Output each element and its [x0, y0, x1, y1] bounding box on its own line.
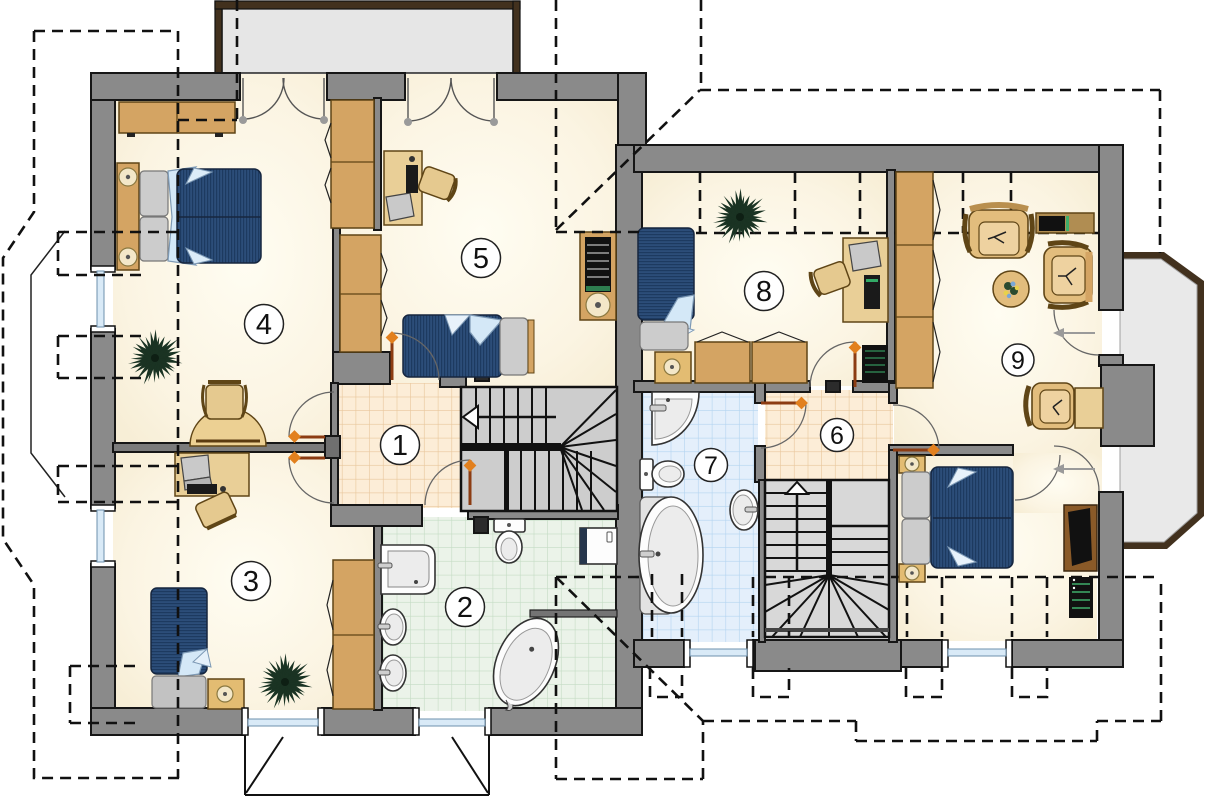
- svg-text:6: 6: [830, 422, 844, 450]
- svg-text:9: 9: [1011, 347, 1025, 375]
- svg-text:3: 3: [243, 566, 259, 598]
- svg-text:4: 4: [256, 309, 272, 341]
- svg-text:8: 8: [756, 276, 772, 308]
- svg-text:2: 2: [457, 592, 473, 624]
- svg-text:7: 7: [704, 452, 718, 480]
- svg-text:1: 1: [392, 430, 408, 462]
- svg-text:5: 5: [473, 243, 489, 275]
